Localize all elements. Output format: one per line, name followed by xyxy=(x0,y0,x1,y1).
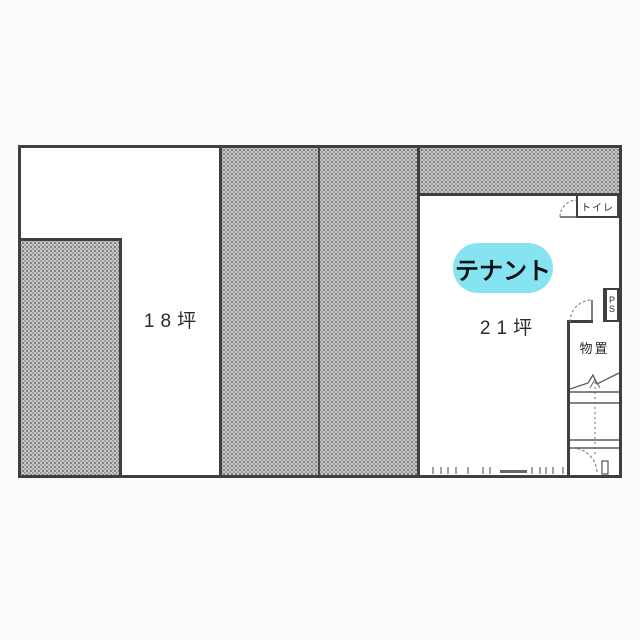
wall-storage-top xyxy=(567,320,593,323)
stair-entry-door xyxy=(572,448,608,474)
ps-area-door xyxy=(570,300,592,322)
wall-middle-divider xyxy=(318,148,320,475)
shutter-ticks xyxy=(433,467,563,474)
wall-left-block-right xyxy=(119,238,122,475)
area-label-18: 18坪 xyxy=(133,306,213,333)
toilet-box: トイレ xyxy=(576,194,619,218)
area-label-21: 21坪 xyxy=(469,313,549,340)
wall-middle-right xyxy=(417,148,420,475)
toilet-door xyxy=(560,200,577,217)
floor-plan: 18坪 テナント 21坪 トイレ P S 物置 xyxy=(18,145,622,478)
hatched-band-top-right xyxy=(420,148,619,193)
wall-left-block-top xyxy=(21,238,122,241)
pipe-shaft-box: P S xyxy=(603,288,619,322)
staircase xyxy=(570,373,619,456)
tenant-badge: テナント xyxy=(453,243,553,293)
toilet-label: トイレ xyxy=(581,199,614,214)
hatched-block-left xyxy=(21,241,119,475)
pipe-shaft-label-s: S xyxy=(609,305,615,314)
wall-middle-left xyxy=(219,148,222,475)
storage-label: 物置 xyxy=(570,338,619,357)
